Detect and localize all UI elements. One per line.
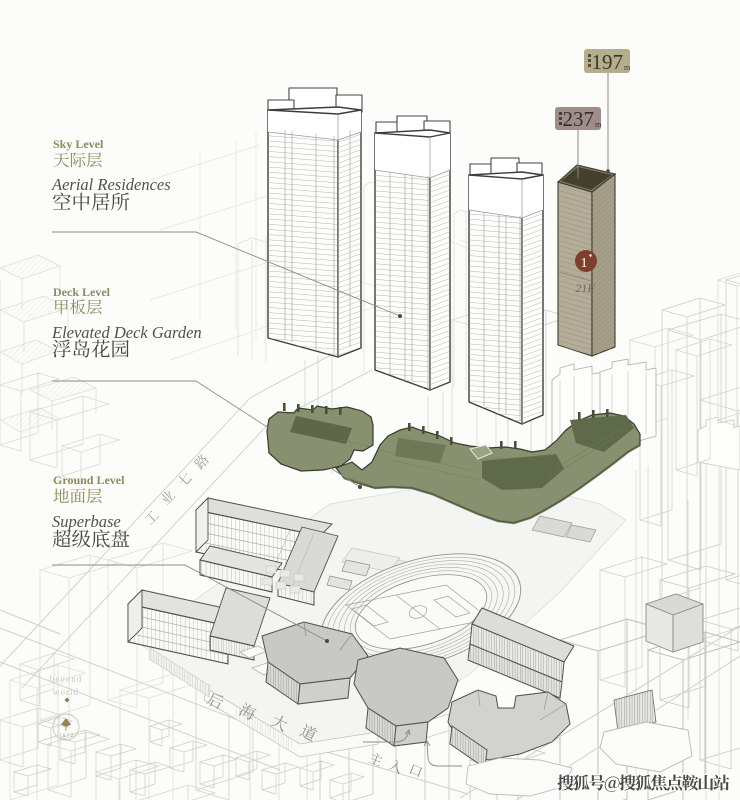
svg-text:beyond: beyond — [50, 674, 83, 684]
svg-text:Deck Level: Deck Level — [53, 285, 111, 299]
svg-text:Aerial Residences: Aerial Residences — [51, 175, 171, 194]
svg-text:197: 197 — [592, 50, 624, 74]
svg-text:Superbase: Superbase — [52, 512, 121, 531]
svg-text:1 8 7 2: 1 8 7 2 — [59, 734, 73, 739]
svg-text:Sky Level: Sky Level — [53, 137, 104, 151]
svg-text:m: m — [624, 63, 631, 72]
svg-text:world: world — [53, 687, 79, 697]
svg-text:Elevated Deck Garden: Elevated Deck Garden — [51, 323, 202, 342]
svg-text:Ground Level: Ground Level — [53, 473, 125, 487]
svg-text:1: 1 — [581, 256, 588, 271]
svg-text:237: 237 — [563, 107, 595, 131]
svg-text:21F: 21F — [575, 281, 595, 295]
svg-text:m: m — [595, 120, 602, 129]
